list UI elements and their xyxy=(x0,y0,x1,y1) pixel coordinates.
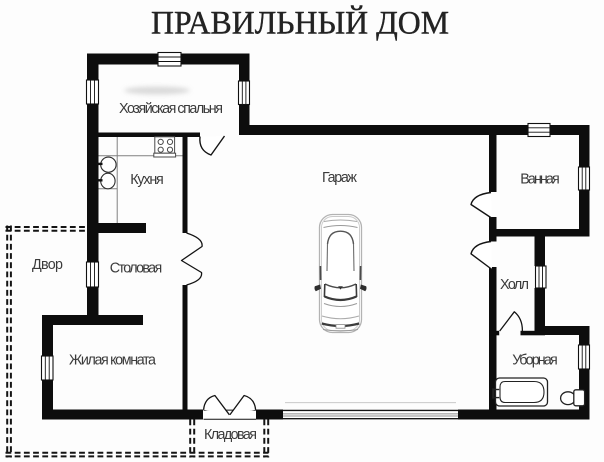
svg-text:Хозяйская спальня: Хозяйская спальня xyxy=(119,101,223,117)
svg-text:Холл: Холл xyxy=(500,277,529,293)
svg-text:ПРАВИЛЬНЫЙ ДОМ: ПРАВИЛЬНЫЙ ДОМ xyxy=(151,5,449,41)
svg-text:Уборная: Уборная xyxy=(512,353,558,369)
svg-text:Гараж: Гараж xyxy=(322,170,357,186)
svg-text:Кладовая: Кладовая xyxy=(204,427,257,443)
svg-text:Кухня: Кухня xyxy=(130,172,164,188)
svg-text:Столовая: Столовая xyxy=(110,260,163,276)
svg-text:Двор: Двор xyxy=(32,257,63,273)
svg-text:Жилая комната: Жилая комната xyxy=(69,353,156,369)
svg-text:Ванная: Ванная xyxy=(520,172,559,188)
